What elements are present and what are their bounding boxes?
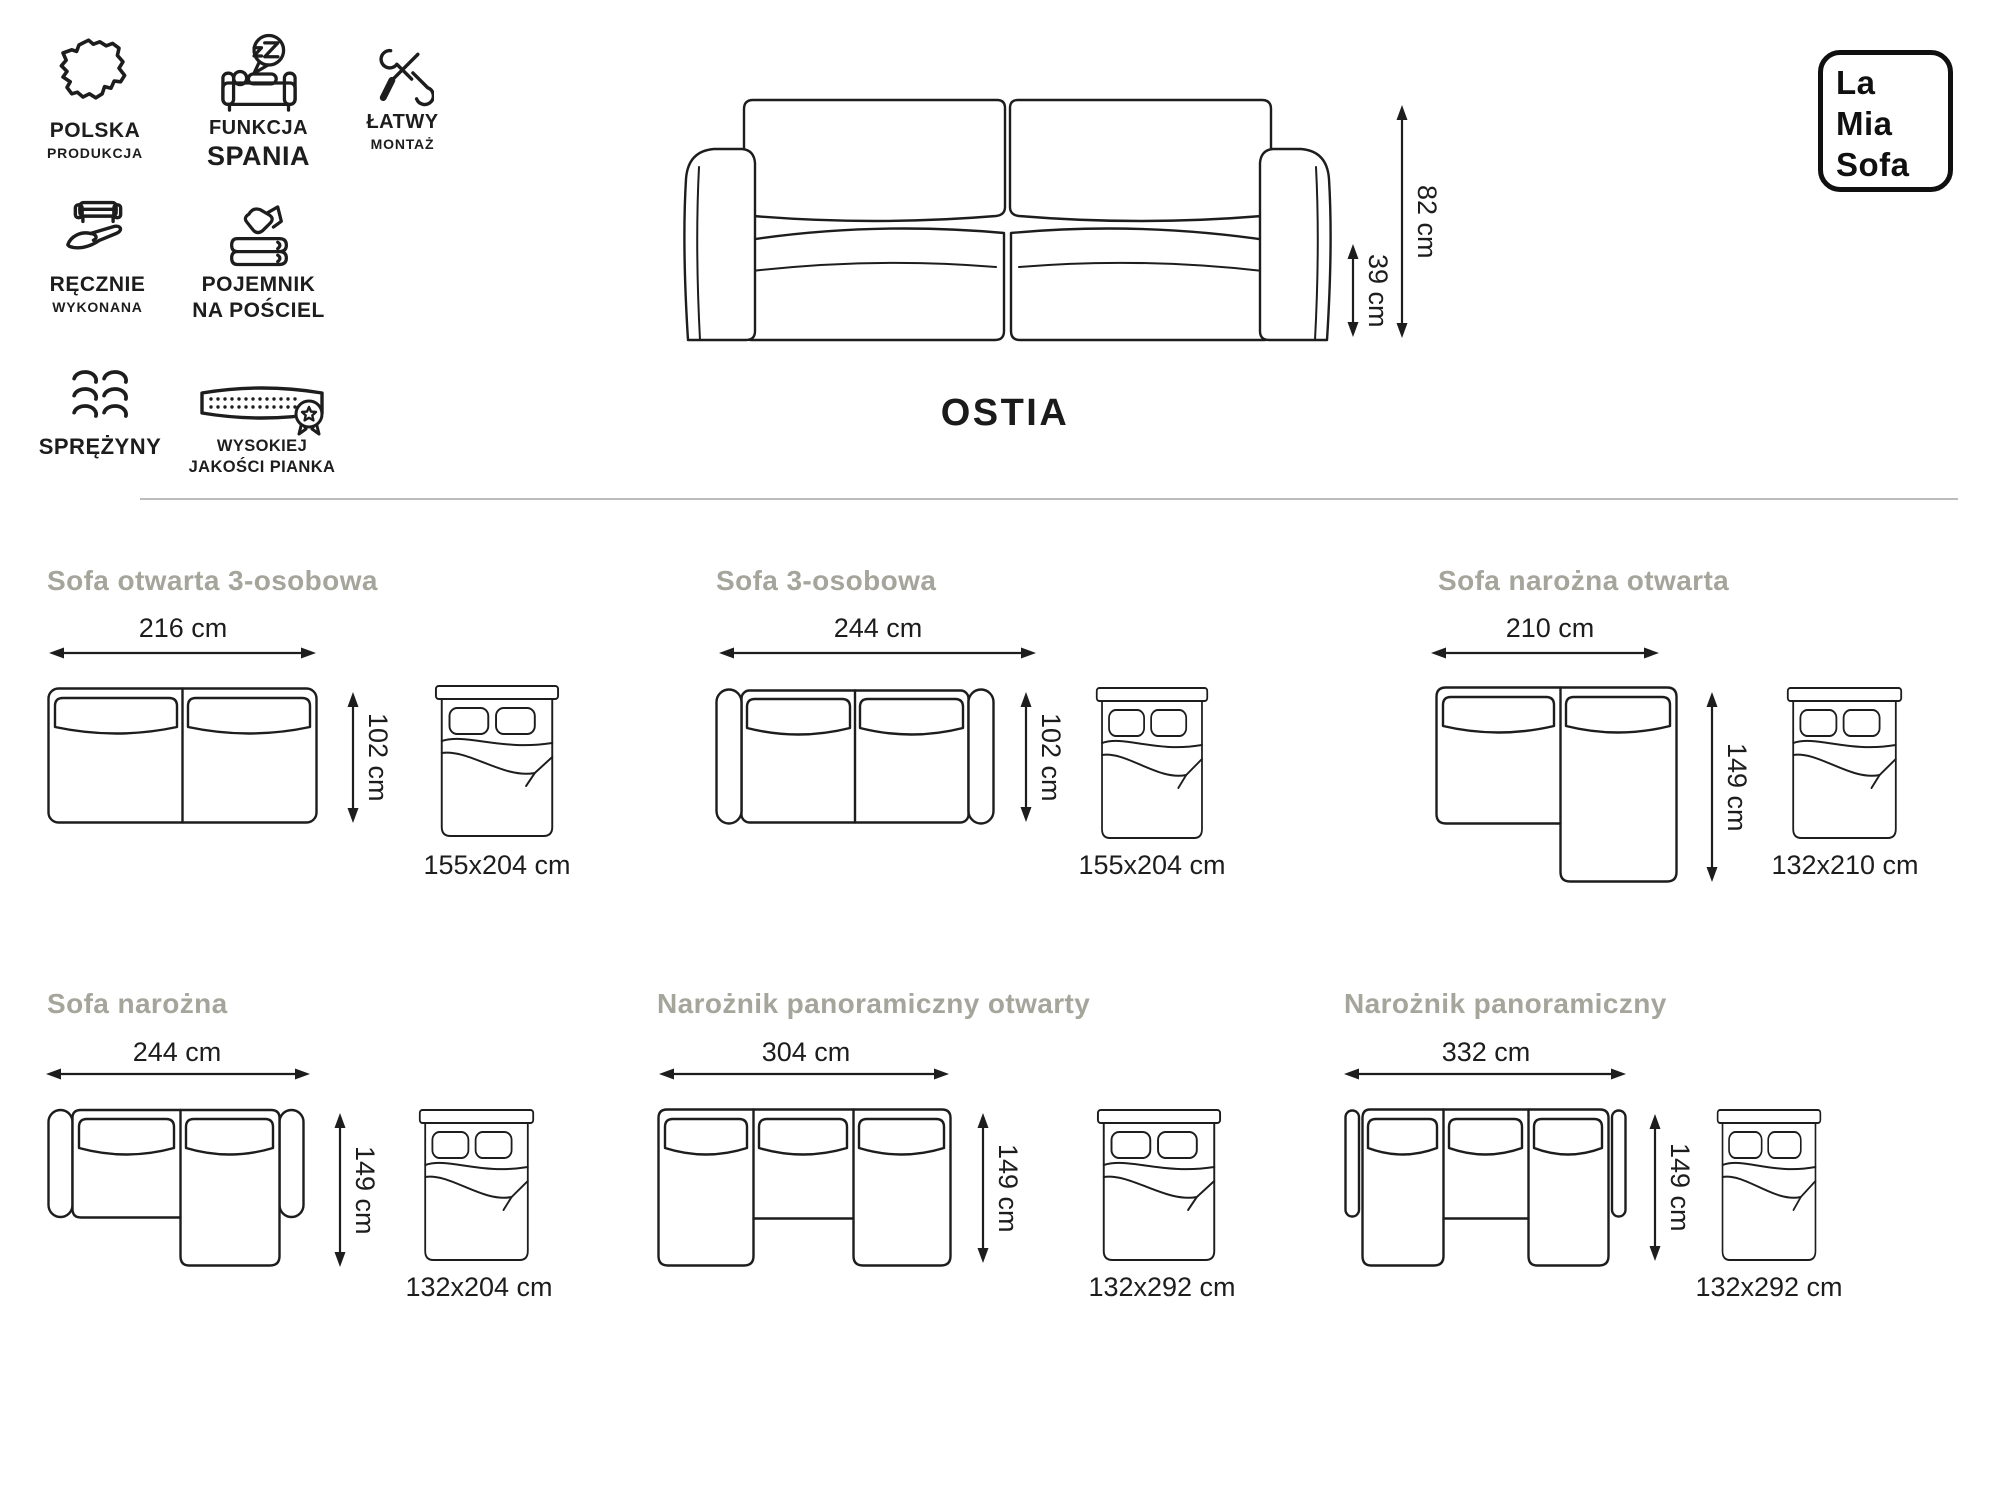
variant-width-label: 332 cm [1411,1037,1561,1068]
feature-label: ŁATWY [366,110,438,135]
feature-label: FUNKCJA [209,116,308,141]
feature-funkcja-spania: FUNKCJA SPANIA [176,32,341,171]
variant-width-label: 304 cm [731,1037,881,1068]
feature-label: POJEMNIK [202,272,316,298]
feature-label: POLSKA [50,118,141,144]
bed-icon [1096,1108,1222,1263]
bed-icon [1716,1108,1822,1263]
section-divider [140,498,1958,500]
sofa-top-view-closed [715,688,995,825]
variant-title: Sofa 3-osobowa [716,565,936,597]
tools-icon [372,42,434,110]
variant-depth-label: 149 cm [992,1112,1023,1264]
feature-label: SPRĘŻYNY [39,434,162,460]
bed-size-label: 132x204 cm [389,1272,569,1303]
width-dimension-arrow [48,646,317,660]
variant-depth-label: 149 cm [1721,691,1752,883]
poland-map-icon [55,36,135,118]
sleep-function-icon [218,32,300,116]
depth-dimension-arrow [976,1112,990,1264]
feature-sprezyny: SPRĘŻYNY [25,364,175,460]
variant-depth-label: 149 cm [1664,1113,1695,1262]
feature-label: RĘCZNIE [50,272,146,298]
width-dimension-arrow [658,1067,950,1081]
bed-icon [1786,686,1903,841]
logo-line: La [1836,62,1948,103]
brand-logo: La Mia Sofa [1818,50,1953,192]
total-height-arrow [1395,104,1409,339]
feature-sublabel: WYKONANA [52,298,142,316]
logo-line: Sofa [1836,144,1948,185]
variant-width-label: 244 cm [102,1037,252,1068]
spec-sheet: POLSKA PRODUKCJA FUNKCJA SPANIA [0,0,2000,1500]
feature-latwy-montaz: ŁATWY MONTAŻ [340,42,465,153]
variant-depth-label: 102 cm [1035,691,1066,823]
feature-label: WYSOKIEJ [217,436,307,457]
feature-sublabel: MONTAŻ [371,135,435,153]
feature-pojemnik-na-posciel: POJEMNIK NA POŚCIEL [176,198,341,323]
bed-size-label: 132x292 cm [1072,1272,1252,1303]
handmade-icon [60,198,136,272]
sofa-top-view-open [47,687,318,824]
variant-title: Narożnik panoramiczny otwarty [657,988,1090,1020]
total-height-label: 82 cm [1411,104,1442,339]
variant-depth-label: 102 cm [362,691,393,824]
depth-dimension-arrow [1648,1113,1662,1262]
feature-wysokiej-jakosci-pianka: WYSOKIEJ JAKOŚCI PIANKA [178,378,346,478]
width-dimension-arrow [45,1067,311,1081]
sofa-top-view-panoramic [1344,1108,1627,1267]
foam-icon [195,378,329,436]
depth-dimension-arrow [1019,691,1033,823]
depth-dimension-arrow [346,691,360,824]
seat-height-label: 39 cm [1362,243,1393,338]
feature-sublabel: SPANIA [207,141,310,171]
variant-depth-label: 149 cm [349,1112,380,1268]
feature-sublabel: JAKOŚCI PIANKA [189,457,336,478]
variant-title: Sofa narożna otwarta [1438,565,1729,597]
bed-size-label: 132x210 cm [1755,850,1935,881]
depth-dimension-arrow [333,1112,347,1268]
feature-sublabel: PRODUKCJA [47,144,143,162]
width-dimension-arrow [718,646,1037,660]
variant-title: Sofa narożna [47,988,228,1020]
variant-title: Sofa otwarta 3-osobowa [47,565,378,597]
bed-icon [1095,686,1209,841]
seat-height-arrow [1346,243,1360,338]
bedding-storage-icon [223,198,295,272]
width-dimension-arrow [1430,646,1660,660]
bed-size-label: 132x292 cm [1679,1272,1859,1303]
feature-polska-produkcja: POLSKA PRODUKCJA [20,36,170,162]
sofa-top-view-corner-open [1435,686,1678,883]
feature-sublabel: NA POŚCIEL [192,298,325,323]
sofa-front-view [680,95,1335,345]
bed-size-label: 155x204 cm [1062,850,1242,881]
bed-icon [418,1108,535,1263]
bed-icon [434,684,560,839]
variant-width-label: 216 cm [108,613,258,644]
product-name: OSTIA [820,392,1190,435]
bed-size-label: 155x204 cm [407,850,587,881]
width-dimension-arrow [1343,1067,1627,1081]
feature-recznie-wykonana: RĘCZNIE WYKONANA [20,198,175,316]
depth-dimension-arrow [1705,691,1719,883]
variant-width-label: 210 cm [1475,613,1625,644]
springs-icon [66,364,134,434]
sofa-top-view-corner [47,1108,305,1268]
variant-width-label: 244 cm [803,613,953,644]
logo-line: Mia [1836,103,1948,144]
variant-title: Narożnik panoramiczny [1344,988,1667,1020]
sofa-top-view-panoramic-open [657,1108,952,1267]
